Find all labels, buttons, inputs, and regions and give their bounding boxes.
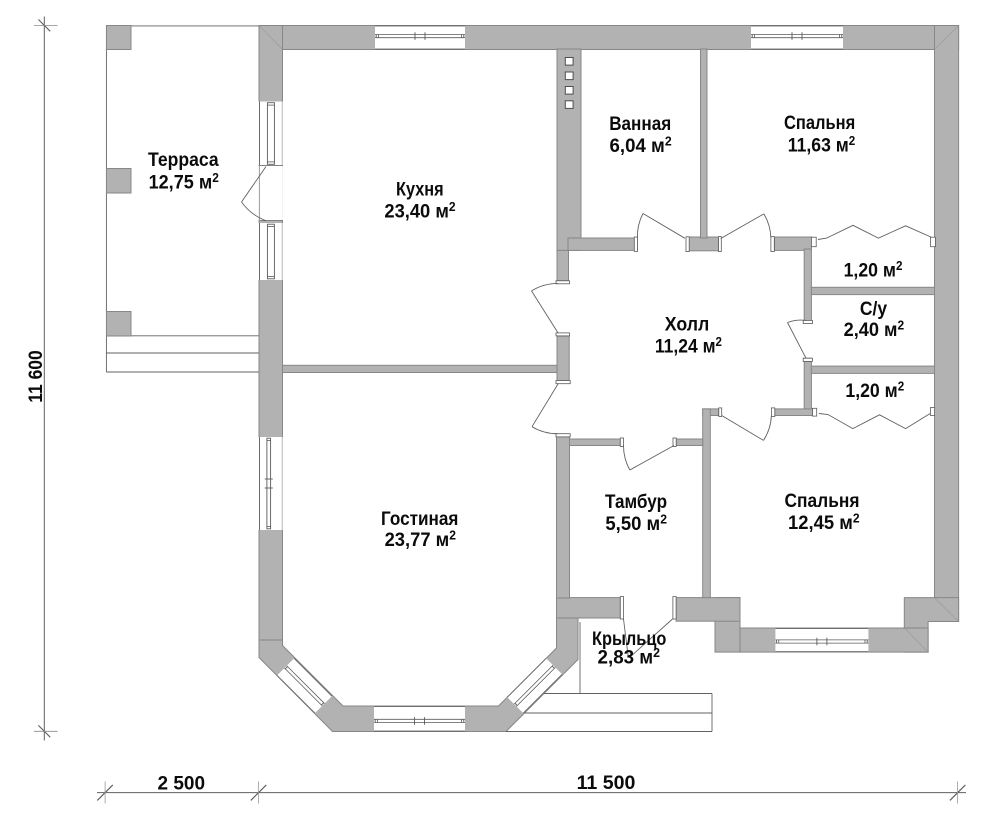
svg-text:11 500: 11 500: [577, 773, 636, 794]
svg-text:Терраса: Терраса: [148, 150, 219, 171]
svg-text:Гостиная: Гостиная: [381, 509, 458, 530]
svg-text:12,45 м2: 12,45 м2: [788, 511, 860, 534]
svg-text:5,50 м2: 5,50 м2: [605, 512, 667, 535]
svg-text:11,63 м2: 11,63 м2: [788, 134, 855, 157]
svg-text:23,40 м2: 23,40 м2: [384, 200, 455, 223]
svg-text:23,77 м2: 23,77 м2: [385, 529, 456, 552]
svg-text:12,75 м2: 12,75 м2: [149, 171, 219, 194]
svg-text:2,40 м2: 2,40 м2: [844, 319, 905, 342]
svg-text:Холл: Холл: [665, 314, 710, 335]
svg-text:Спальня: Спальня: [784, 113, 855, 134]
svg-text:1,20 м2: 1,20 м2: [845, 379, 904, 402]
svg-text:1,20 м2: 1,20 м2: [844, 259, 903, 282]
svg-text:С/у: С/у: [860, 299, 888, 320]
svg-text:Спальня: Спальня: [785, 491, 860, 512]
svg-text:Тамбур: Тамбур: [605, 492, 667, 513]
svg-text:11,24 м2: 11,24 м2: [655, 335, 722, 358]
svg-text:11 600: 11 600: [26, 350, 47, 403]
svg-text:6,04 м2: 6,04 м2: [610, 134, 672, 157]
svg-text:2,83 м2: 2,83 м2: [598, 646, 661, 669]
svg-text:Кухня: Кухня: [396, 179, 444, 200]
svg-text:2 500: 2 500: [158, 773, 206, 794]
svg-text:Ванная: Ванная: [609, 114, 671, 135]
